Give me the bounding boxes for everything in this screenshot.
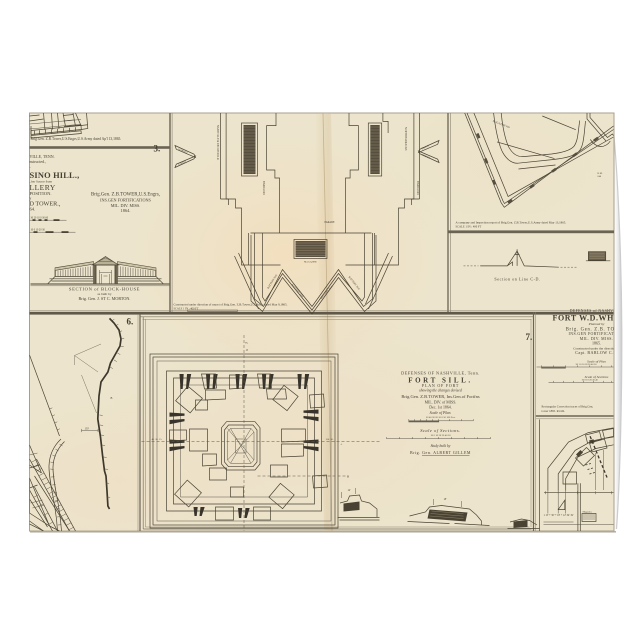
svg-text:Scale of Plan.: Scale of Plan. [430,411,452,415]
svg-text:Capt. BARLOW C.E.: Capt. BARLOW C.E. [575,350,618,355]
svg-text:1865.: 1865. [592,341,601,346]
svg-text:30 20 10 0 30: 30 20 10 0 30 60 [31,216,49,219]
svg-text:A: A [341,443,343,446]
svg-text:Brig. Gen. ALBERT GILLEM: Brig. Gen. ALBERT GILLEM [410,450,471,455]
svg-text:150· 30·: 150· 30· [326,438,334,441]
svg-text:MIL. DIV. of MISS.: MIL. DIV. of MISS. [425,401,457,405]
svg-text:Magazine: Magazine [583,511,592,514]
svg-text:64.: 64. [30,207,36,212]
svg-text:14': 14' [348,489,352,492]
svg-text:SCALE 1 IN : 400 FT: SCALE 1 IN : 400 FT [456,225,482,229]
svg-text:Dec. 1st 1864.: Dec. 1st 1864. [429,406,452,410]
svg-text:NASHVILLE & DECATUR R.R.: NASHVILLE & DECATUR R.R. [216,125,219,161]
svg-text:Section on Line C-D.: Section on Line C-D. [494,276,540,281]
svg-text:10 0 10 20: 10 0 10 20 30 40 50 [431,434,452,437]
svg-text:10 0 10 20: 10 0 10 20 30 40 [582,378,599,381]
svg-text:18': 18' [444,498,448,501]
svg-text:150': 150' [85,428,90,431]
svg-text:INS.GEN FORTIFICATIONS: INS.GEN FORTIFICATIONS [100,197,151,202]
svg-text:BARRACKS: BARRACKS [262,181,265,196]
svg-text:NORTH BARRACKS: NORTH BARRACKS [404,127,407,151]
svg-text:7.: 7. [526,332,533,342]
svg-text:tower 1865. R.O.R.: tower 1865. R.O.R. [542,409,566,413]
svg-text:50 40 30 20 10 0: 50 40 30 20 10 0 50 100 Feet [426,416,456,419]
svg-text:MAGAZINE: MAGAZINE [304,261,317,264]
svg-text:Scale of Sections.: Scale of Sections. [420,428,461,433]
svg-text:POSITION.: POSITION. [30,191,52,196]
svg-text:Brig. Gen. J. ST C. MORTON.: Brig. Gen. J. ST C. MORTON. [79,296,131,301]
svg-text:1864.: 1864. [121,208,131,213]
svg-text:..: .. [30,165,32,169]
svg-text:10 0 10 20: 10 0 10 20 30 [31,228,46,231]
svg-text:Planned by: Planned by [588,322,605,326]
svg-text:PLAN OF FORT: PLAN OF FORT [422,383,459,388]
svg-text:showing the changes devised: showing the changes devised [419,389,462,393]
svg-text:30 1 0 10 20: 30 1 0 10 20 30 40 50 [576,363,598,366]
svg-text:1 15' + 30' + 18' + 12' 3: 1 15' + 30' + 18' + 12' 34' 19' [544,514,574,517]
svg-text:6.: 6. [127,317,134,327]
svg-text:45· 30· 15·: 45· 30· 15· [152,438,163,441]
svg-text:3.: 3. [154,144,161,154]
svg-text:SECTION of BLOCK-HOUSE: SECTION of BLOCK-HOUSE [69,287,140,292]
svg-text:B: B [111,397,113,400]
svg-text:PARADE: PARADE [325,221,336,224]
svg-text:Study built by: Study built by [431,444,451,448]
svg-text:B: B [347,475,349,479]
svg-text:BARRACKS: BARRACKS [416,181,419,196]
